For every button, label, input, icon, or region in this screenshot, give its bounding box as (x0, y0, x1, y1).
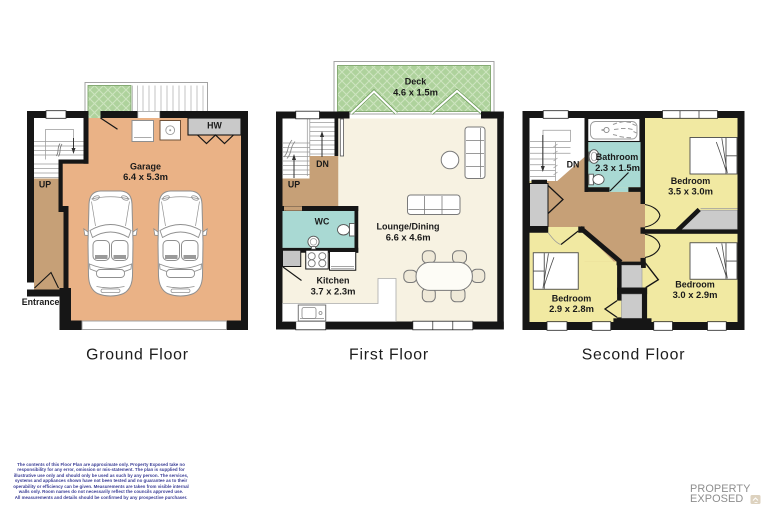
svg-text:Second Floor: Second Floor (582, 347, 686, 364)
svg-text:DN: DN (316, 159, 329, 169)
svg-text:First Floor: First Floor (349, 347, 429, 364)
svg-text:Garage: Garage (130, 162, 161, 172)
svg-text:DN: DN (567, 160, 580, 170)
svg-text:Ground Floor: Ground Floor (86, 347, 189, 364)
svg-text:Kitchen: Kitchen (316, 276, 349, 286)
svg-text:2.3 x 1.5m: 2.3 x 1.5m (595, 162, 640, 173)
svg-text:HW: HW (207, 121, 222, 131)
svg-text:Entrance: Entrance (22, 297, 60, 307)
svg-text:Bathroom: Bathroom (596, 152, 639, 162)
svg-text:3.7 x 2.3m: 3.7 x 2.3m (311, 286, 356, 297)
svg-text:Bedroom: Bedroom (671, 176, 711, 186)
svg-text:2.9 x 2.8m: 2.9 x 2.8m (549, 303, 594, 314)
svg-text:3.5 x 3.0m: 3.5 x 3.0m (668, 186, 713, 197)
svg-text:6.6 x 4.6m: 6.6 x 4.6m (386, 232, 431, 243)
svg-text:Bedroom: Bedroom (675, 280, 715, 290)
svg-text:Lounge/Dining: Lounge/Dining (377, 222, 440, 232)
svg-text:UP: UP (39, 180, 51, 190)
svg-text:Deck: Deck (405, 77, 428, 87)
svg-text:6.4 x 5.3m: 6.4 x 5.3m (123, 171, 168, 182)
svg-text:3.0 x 2.9m: 3.0 x 2.9m (673, 289, 718, 300)
svg-text:WC: WC (315, 217, 330, 227)
svg-text:UP: UP (288, 180, 300, 190)
svg-text:Bedroom: Bedroom (552, 294, 592, 304)
svg-text:4.6 x 1.5m: 4.6 x 1.5m (393, 87, 438, 98)
